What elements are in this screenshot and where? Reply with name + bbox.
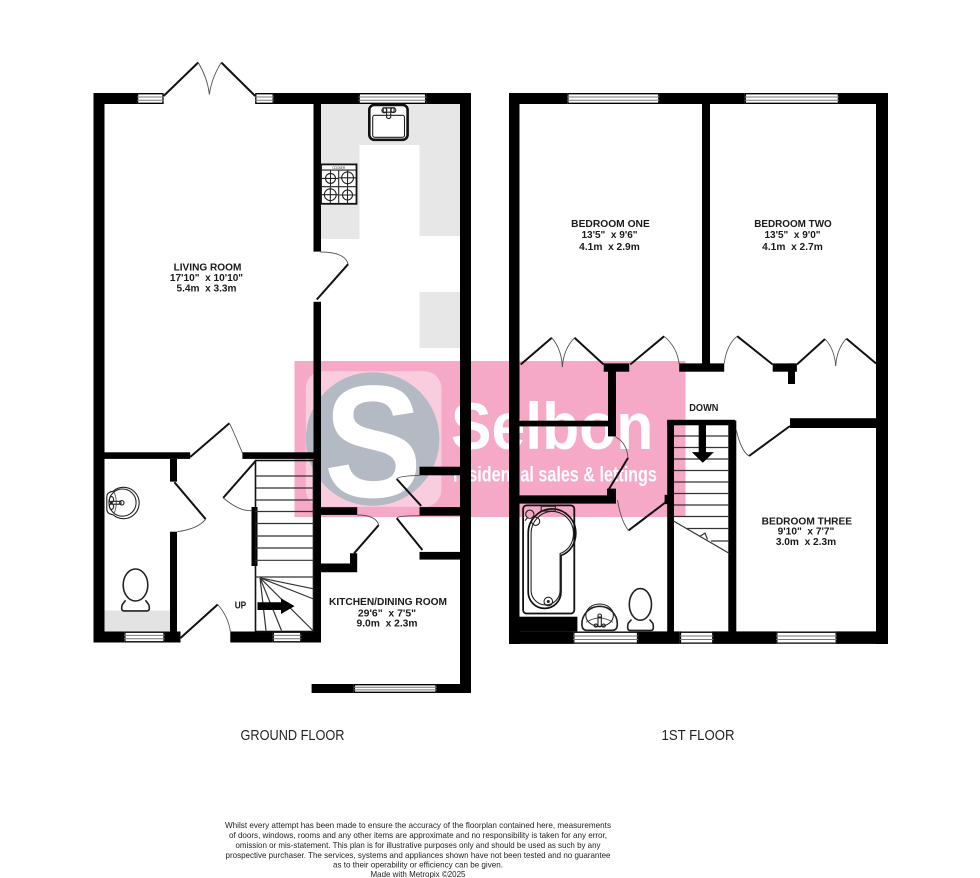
svg-text:BEDROOM TWO: BEDROOM TWO [754,219,832,230]
svg-text:Made with Metropix ©2025: Made with Metropix ©2025 [371,869,466,878]
svg-text:omission or mis-statement. Thi: omission or mis-statement. This plan is … [236,840,602,850]
svg-text:17'10" x 10'10": 17'10" x 10'10" [170,273,243,284]
svg-text:3.0m x 2.3m: 3.0m x 2.3m [776,537,836,548]
svg-text:4.1m x 2.7m: 4.1m x 2.7m [762,242,823,253]
svg-text:of doors, windows, rooms and a: of doors, windows, rooms and any other i… [229,830,607,840]
svg-text:COOKER: COOKER [332,166,345,170]
svg-text:DOWN: DOWN [689,403,718,414]
svg-text:Whilst every attempt has been: Whilst every attempt has been made to en… [225,820,611,830]
svg-text:9'10" x 7'7": 9'10" x 7'7" [778,527,835,538]
svg-text:BEDROOM ONE: BEDROOM ONE [571,219,650,230]
svg-text:residential sales & lettings: residential sales & lettings [453,462,657,486]
svg-text:13'5" x 9'0": 13'5" x 9'0" [764,230,820,241]
svg-text:as to their operability or eff: as to their operability or efficiency ca… [333,860,503,870]
svg-text:Selbon: Selbon [451,391,653,464]
svg-text:KITCHEN/DINING ROOM: KITCHEN/DINING ROOM [329,597,447,608]
svg-text:S: S [324,352,422,531]
svg-text:UP: UP [235,601,247,612]
svg-text:9.0m x 2.3m: 9.0m x 2.3m [357,619,418,630]
svg-text:GROUND FLOOR: GROUND FLOOR [241,728,345,744]
svg-text:prospective purchaser. The ser: prospective purchaser. The services, sys… [226,850,611,860]
svg-text:13'5" x 9'6": 13'5" x 9'6" [581,230,637,241]
svg-text:4.1m x 2.9m: 4.1m x 2.9m [579,242,640,253]
svg-text:1ST FLOOR: 1ST FLOOR [662,728,735,744]
svg-text:5.4m x 3.3m: 5.4m x 3.3m [177,283,237,294]
